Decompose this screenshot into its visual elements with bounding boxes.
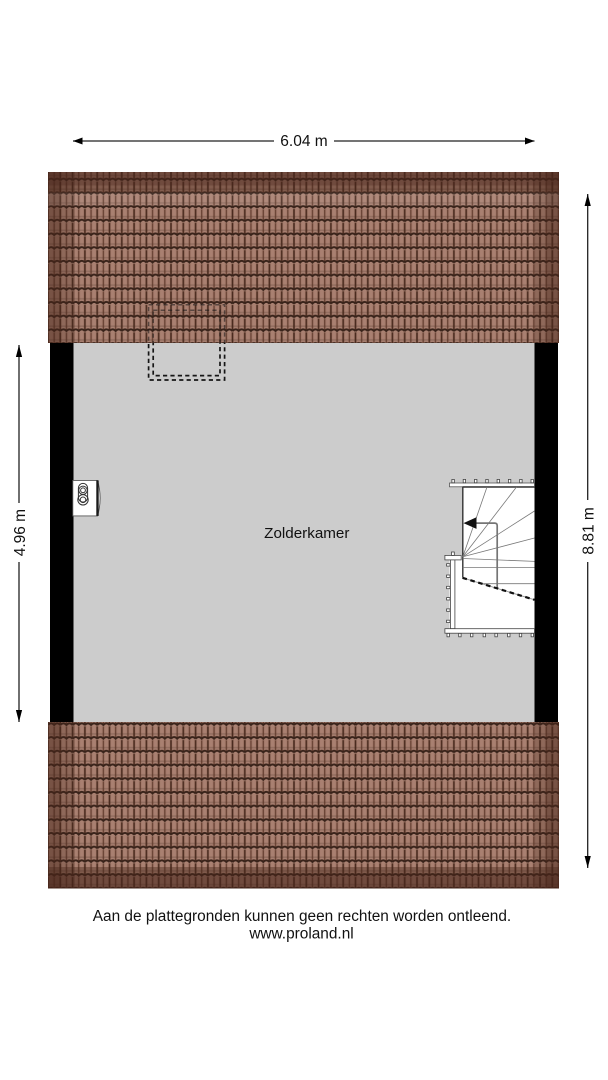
svg-text:www.proland.nl: www.proland.nl <box>248 926 353 943</box>
svg-text:4.96 m: 4.96 m <box>12 509 29 556</box>
svg-text:6.04 m: 6.04 m <box>280 133 327 150</box>
svg-text:8.81 m: 8.81 m <box>581 507 598 554</box>
svg-text:Aan de plattegronden kunnen ge: Aan de plattegronden kunnen geen rechten… <box>93 908 511 925</box>
svg-text:Zolderkamer: Zolderkamer <box>264 525 349 542</box>
